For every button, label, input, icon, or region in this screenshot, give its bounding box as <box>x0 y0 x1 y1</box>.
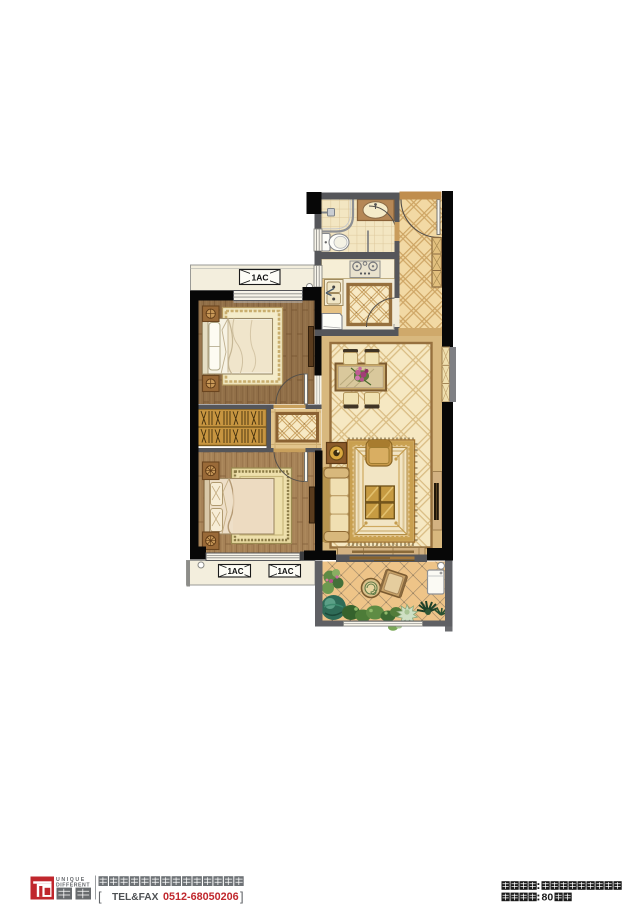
svg-text:1AC: 1AC <box>251 273 268 283</box>
svg-text:TEL&FAX: TEL&FAX <box>112 892 159 903</box>
svg-text:DIFFERENT: DIFFERENT <box>56 882 90 888</box>
svg-text:1AC: 1AC <box>277 567 293 576</box>
svg-text:0512-68050206: 0512-68050206 <box>163 891 239 903</box>
svg-text:80: 80 <box>542 891 554 903</box>
svg-text:1AC: 1AC <box>227 567 243 576</box>
svg-text:]: ] <box>240 889 244 904</box>
svg-text:[: [ <box>98 889 102 904</box>
